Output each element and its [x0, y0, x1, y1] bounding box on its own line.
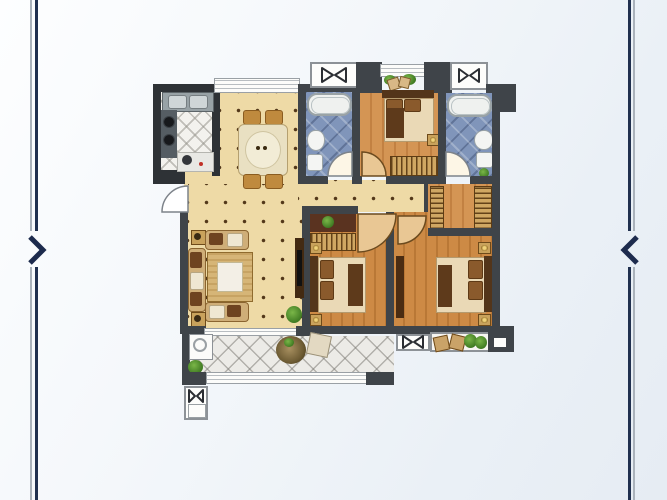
corner-notch [494, 338, 506, 347]
next-arrow-button[interactable] [617, 234, 641, 266]
side-table-lamp [194, 315, 201, 322]
wall-between-bedrooms [386, 212, 394, 332]
coffee-table-top [217, 262, 243, 292]
bathtub-inner [311, 97, 350, 114]
living-plant [286, 306, 302, 323]
sofa-cushion [190, 252, 202, 268]
stove-burner-1 [163, 116, 175, 128]
bed-headboard [484, 256, 492, 312]
wall [352, 176, 362, 184]
pillow [320, 281, 334, 300]
flower-bed-plant [475, 336, 487, 349]
frame-line-left-dark-bottom [35, 267, 38, 500]
wall [386, 176, 446, 184]
dining-window [214, 78, 300, 93]
kitchen-accent-dot [199, 162, 203, 166]
bedroom-north-wall-left [352, 88, 360, 184]
ac-platform-south [396, 334, 430, 351]
frame-line-right-dark-bottom [628, 267, 631, 500]
toilet [307, 130, 325, 151]
side-table-lamp [194, 233, 201, 240]
rattan-planter-leaves [284, 338, 294, 347]
washbasin [476, 152, 493, 168]
balcony-sliding-door [204, 328, 298, 336]
plate [256, 146, 260, 150]
washbasin [307, 154, 323, 171]
nightstand-lamp [310, 242, 322, 254]
bath-east-wall-left [438, 88, 446, 184]
kitchen-faucet [182, 155, 192, 165]
dining-chair [243, 174, 261, 189]
bathtub-inner [451, 98, 490, 115]
wall-left-living [180, 208, 188, 334]
pillow [404, 99, 421, 112]
ac-platform-inner [188, 404, 206, 418]
windowsill-frame [398, 76, 411, 89]
pillow [468, 281, 483, 300]
master-plant [322, 216, 334, 228]
prev-arrow-button[interactable] [26, 234, 50, 266]
balcony-corner [182, 372, 206, 385]
wardrobe-cloak-left [430, 186, 444, 230]
wall-master-top [310, 206, 358, 214]
kitchen-wall-top [153, 84, 220, 92]
frame-line-left-dark-top [35, 0, 38, 231]
wardrobe-cloak-right [474, 186, 492, 230]
frame-line-left-light-top [30, 0, 32, 231]
sofa-cushion [227, 305, 241, 317]
frame-line-right-light-bottom [633, 267, 635, 500]
balcony-chair [306, 332, 332, 358]
floor-plan-viewer [0, 0, 667, 500]
sofa-cushion [227, 233, 243, 247]
pillow [468, 260, 483, 279]
pillow [320, 260, 334, 279]
wall [298, 176, 328, 184]
tv-cabinet-bedroom [396, 256, 404, 318]
wall [296, 326, 310, 336]
wall-cloak-bottom [428, 228, 500, 236]
stove-burner-2 [163, 134, 175, 146]
kitchen-wall-left [153, 84, 161, 184]
bath-north-wall-left [298, 84, 306, 184]
dining-chair [243, 110, 261, 125]
sink-basin-right [189, 95, 208, 109]
bed-headboard [310, 256, 318, 312]
wall-right [492, 110, 500, 332]
nightstand-lamp [310, 314, 322, 326]
bed-throw [348, 264, 363, 306]
ac-platform-north-2 [450, 62, 488, 90]
sink-basin-left [168, 95, 187, 109]
nightstand-lamp [478, 242, 491, 254]
dining-table-glass [245, 131, 281, 169]
ac-platform-north-1 [310, 62, 358, 88]
balcony-corner [366, 372, 394, 385]
bed-headboard [382, 90, 434, 98]
bed-throw [386, 108, 404, 138]
sofa-cushion [209, 233, 223, 245]
sofa-cushion [190, 272, 204, 290]
dining-chair [265, 174, 283, 189]
plate [263, 146, 267, 150]
balcony-railing [206, 372, 368, 384]
frame-line-right-light-top [633, 0, 635, 231]
sofa-cushion [209, 305, 225, 319]
bed-throw [438, 265, 452, 307]
kitchen-wall-bottom [153, 170, 185, 184]
flower-bed-cushion [433, 335, 451, 353]
nightstand-lamp [478, 314, 491, 326]
frame-line-left-light-bottom [30, 267, 32, 500]
sofa-cushion [190, 292, 202, 306]
toilet [474, 130, 493, 150]
washing-machine-door [193, 338, 207, 352]
dining-chair [265, 110, 283, 125]
wardrobe-north [390, 156, 438, 176]
tv-screen [297, 250, 302, 286]
frame-line-right-dark-top [628, 0, 631, 231]
